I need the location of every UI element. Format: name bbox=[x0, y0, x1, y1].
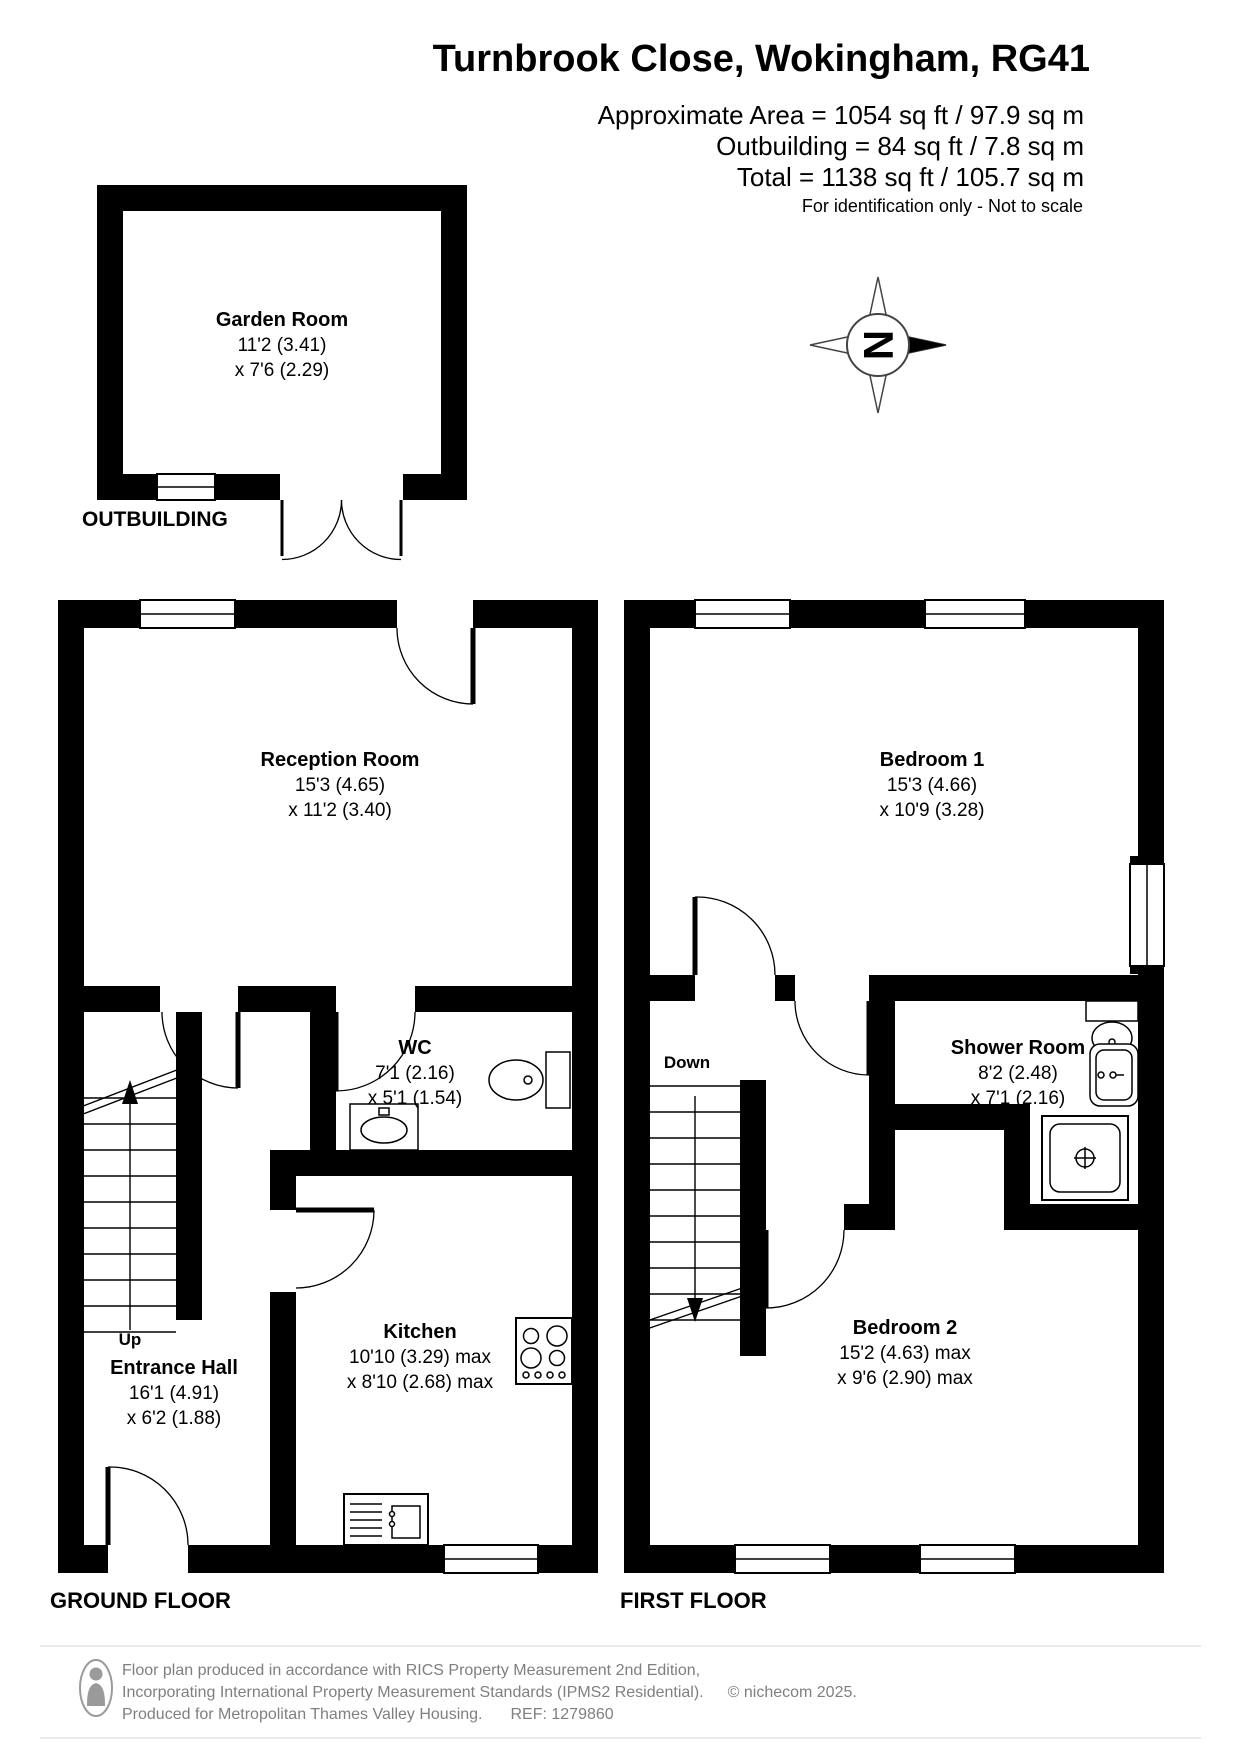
floorplan-page: Turnbrook Close, Wokingham, RG41 Approxi… bbox=[0, 0, 1241, 1755]
room-dim: 15'2 (4.63) max bbox=[805, 1341, 1005, 1366]
footer-line-3: Produced for Metropolitan Thames Valley … bbox=[122, 1704, 857, 1726]
outbuilding-window bbox=[157, 474, 215, 500]
room-dim: 7'1 (2.16) bbox=[315, 1061, 515, 1086]
outbuilding-french-doors bbox=[282, 500, 401, 560]
shower-tray-icon bbox=[1042, 1116, 1128, 1200]
outbuilding-area: Outbuilding = 84 sq ft / 7.8 sq m bbox=[598, 131, 1084, 162]
room-dim: 16'1 (4.91) bbox=[74, 1381, 274, 1406]
approximate-area: Approximate Area = 1054 sq ft / 97.9 sq … bbox=[598, 100, 1084, 131]
room-name: Bedroom 1 bbox=[832, 748, 1032, 773]
room-dim: x 5'1 (1.54) bbox=[315, 1086, 515, 1111]
room-label-shower-room: Shower Room 8'2 (2.48) x 7'1 (2.16) bbox=[918, 1036, 1118, 1111]
total-area: Total = 1138 sq ft / 105.7 sq m bbox=[598, 162, 1084, 193]
room-dim: 11'2 (3.41) bbox=[182, 333, 382, 358]
area-summary: Approximate Area = 1054 sq ft / 97.9 sq … bbox=[598, 100, 1084, 193]
outbuilding-label: OUTBUILDING bbox=[82, 508, 228, 532]
room-name: Reception Room bbox=[240, 748, 440, 773]
room-name: Kitchen bbox=[300, 1320, 540, 1345]
room-dim: x 8'10 (2.68) max bbox=[300, 1370, 540, 1395]
stairs-down-label: Down bbox=[641, 1053, 733, 1073]
footer-line-1: Floor plan produced in accordance with R… bbox=[122, 1660, 857, 1682]
room-dim: x 6'2 (1.88) bbox=[74, 1406, 274, 1431]
compass-north-letter: N bbox=[848, 315, 908, 375]
reference-number: REF: 1279860 bbox=[510, 1706, 613, 1723]
room-dim: 10'10 (3.29) max bbox=[300, 1345, 540, 1370]
room-dim: 15'3 (4.65) bbox=[240, 773, 440, 798]
room-name: WC bbox=[315, 1036, 515, 1061]
ground-floor-label: GROUND FLOOR bbox=[50, 1588, 231, 1614]
room-dim: x 11'2 (3.40) bbox=[240, 798, 440, 823]
ground-floor-stairs bbox=[78, 1068, 182, 1332]
room-name: Garden Room bbox=[182, 308, 382, 333]
footer-disclaimer: Floor plan produced in accordance with R… bbox=[122, 1660, 857, 1726]
room-dim: x 7'6 (2.29) bbox=[182, 358, 382, 383]
room-label-kitchen: Kitchen 10'10 (3.29) max x 8'10 (2.68) m… bbox=[300, 1320, 540, 1395]
floorplan-drawing bbox=[0, 0, 1241, 1755]
room-dim: x 7'1 (2.16) bbox=[918, 1086, 1118, 1111]
room-dim: x 10'9 (3.28) bbox=[832, 798, 1032, 823]
sink-icon-kitchen bbox=[344, 1494, 428, 1545]
room-dim: 15'3 (4.66) bbox=[832, 773, 1032, 798]
up-arrow-icon bbox=[122, 1080, 138, 1104]
scale-disclaimer: For identification only - Not to scale bbox=[802, 196, 1083, 217]
footer-line-2: Incorporating International Property Mea… bbox=[122, 1682, 857, 1704]
room-label-bedroom-1: Bedroom 1 15'3 (4.66) x 10'9 (3.28) bbox=[832, 748, 1032, 823]
room-name: Bedroom 2 bbox=[805, 1316, 1005, 1341]
room-label-entrance-hall: Entrance Hall 16'1 (4.91) x 6'2 (1.88) bbox=[74, 1356, 274, 1431]
room-label-wc: WC 7'1 (2.16) x 5'1 (1.54) bbox=[315, 1036, 515, 1111]
first-floor-stairs bbox=[644, 1086, 748, 1330]
room-label-reception-room: Reception Room 15'3 (4.65) x 11'2 (3.40) bbox=[240, 748, 440, 823]
room-label-garden-room: Garden Room 11'2 (3.41) x 7'6 (2.29) bbox=[182, 308, 382, 383]
room-name: Shower Room bbox=[918, 1036, 1118, 1061]
first-floor-doors bbox=[695, 897, 869, 1308]
room-label-bedroom-2: Bedroom 2 15'2 (4.63) max x 9'6 (2.90) m… bbox=[805, 1316, 1005, 1391]
person-logo-icon bbox=[80, 1660, 112, 1716]
copyright: © nichecom 2025. bbox=[728, 1684, 857, 1701]
room-dim: 8'2 (2.48) bbox=[918, 1061, 1118, 1086]
stairs-up-label: Up bbox=[84, 1330, 176, 1350]
room-dim: x 9'6 (2.90) max bbox=[805, 1366, 1005, 1391]
room-name: Entrance Hall bbox=[74, 1356, 274, 1381]
first-floor-label: FIRST FLOOR bbox=[620, 1588, 767, 1614]
page-title: Turnbrook Close, Wokingham, RG41 bbox=[433, 38, 1090, 81]
